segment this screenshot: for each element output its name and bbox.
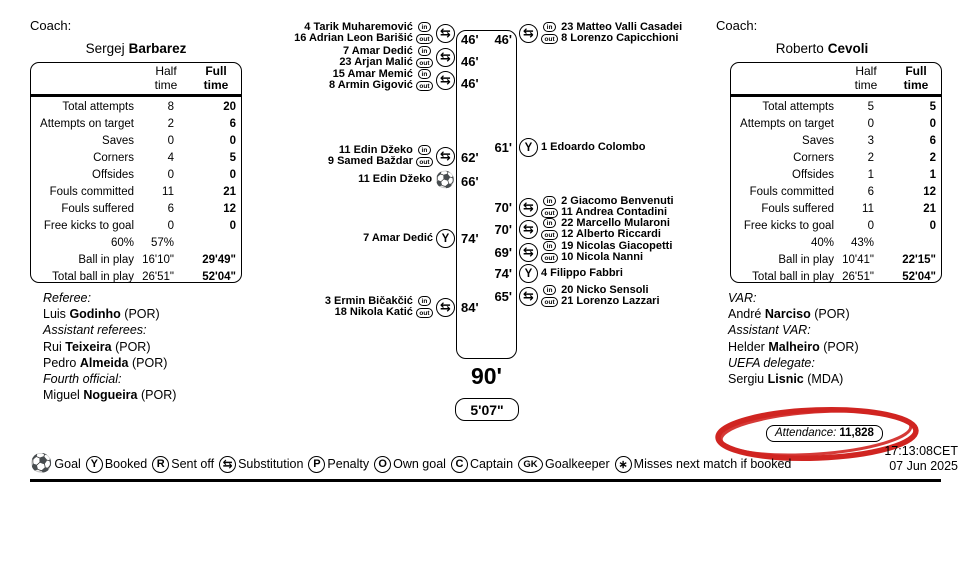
table-row: Fouls committed612 xyxy=(731,183,941,200)
own-goal-icon: O xyxy=(374,456,391,473)
player-names: 20 Nicko Sensoli 21 Lorenzo Lazzari xyxy=(561,285,659,308)
stat-full-value: 21 xyxy=(174,186,239,198)
substitution-event: ⇆ in out 22 Marcello Mularoni 12 Alberto… xyxy=(519,218,670,241)
table-row: Total ball in play26'51"52'04" xyxy=(31,268,241,285)
player-names: 22 Marcello Mularoni 12 Alberto Riccardi xyxy=(561,218,670,241)
event-minute: 46' xyxy=(461,54,479,69)
full-time-column-header: Full time xyxy=(893,65,939,92)
stat-full-value: 52'04" xyxy=(174,271,239,283)
home-coach-label: Coach: xyxy=(30,18,71,33)
stat-full-value: 5 xyxy=(874,101,939,113)
substitution-event: ⇆ in out 20 Nicko Sensoli 21 Lorenzo Laz… xyxy=(519,285,660,308)
in-out-badges: in out xyxy=(541,22,558,44)
stat-label: Total ball in play xyxy=(31,271,134,283)
legend-label: Goal xyxy=(54,457,80,471)
table-row: Offsides11 xyxy=(731,166,941,183)
symbols-legend: ⚽ Goal Y Booked R Sent off ⇆ Substitutio… xyxy=(30,454,791,474)
official-country: (MDA) xyxy=(804,372,844,386)
stat-half-value: 43% xyxy=(834,237,874,249)
report-timestamp: 17:13:08CET 07 Jun 2025 xyxy=(884,444,958,473)
stat-half-value: 4 xyxy=(134,152,174,164)
stat-half-value: 2 xyxy=(134,118,174,130)
in-out-badges: in out xyxy=(541,241,558,263)
stat-label: Free kicks to goal xyxy=(731,220,834,232)
out-badge: out xyxy=(541,208,558,218)
official-last-name: Almeida xyxy=(80,356,129,370)
away-coach-name: RobertoCevoli xyxy=(716,41,928,56)
home-stats-table: Half time Full time Total attempts820 At… xyxy=(30,62,242,283)
legend-label: Sent off xyxy=(171,457,214,471)
stat-full-value: 0 xyxy=(174,169,239,181)
stat-label: Attempts on target xyxy=(731,118,834,130)
player-names: 7 Amar Dedić 23 Arjan Malić xyxy=(339,46,413,69)
event-minute: 65' xyxy=(456,289,512,304)
player-out: 18 Nikola Katić xyxy=(325,307,413,318)
stat-label: Ball in play xyxy=(731,254,834,266)
booked-player: 1 Edoardo Colombo xyxy=(541,142,646,153)
official-last-name: Nogueira xyxy=(83,388,137,402)
booked-player: 7 Amar Dedić xyxy=(363,233,433,244)
substitution-icon: ⇆ xyxy=(219,456,236,473)
footer-divider xyxy=(30,479,941,482)
stat-label: Fouls committed xyxy=(31,186,134,198)
goal-icon: ⚽ xyxy=(30,455,52,473)
in-badge: in xyxy=(543,22,556,32)
substitution-icon: ⇆ xyxy=(436,298,455,317)
official-first-name: Sergiu xyxy=(728,372,764,386)
official-first-name: Miguel xyxy=(43,388,80,402)
official-last-name: Godinho xyxy=(69,307,120,321)
stat-half-value: 8 xyxy=(134,101,174,113)
official-last-name: Lisnic xyxy=(768,372,804,386)
table-row: Ball in play16'10"29'49" xyxy=(31,251,241,268)
goal-icon: ⚽ xyxy=(435,172,455,188)
player-names: 4 Tarik Muharemović 16 Adrian Leon Bariš… xyxy=(294,22,413,45)
stat-label: 40% xyxy=(731,237,834,249)
player-out: 8 Lorenzo Capicchioni xyxy=(561,33,682,44)
booked-icon: Y xyxy=(519,138,538,157)
out-badge: out xyxy=(416,81,433,91)
home-coach-last-name: Barbarez xyxy=(129,41,187,56)
substitution-event: ⇆ in out 23 Matteo Valli Casadei 8 Loren… xyxy=(519,22,682,45)
official-role: Assistant VAR: xyxy=(728,322,859,338)
booking-event: 7 Amar Dedić Y xyxy=(363,229,455,248)
out-badge: out xyxy=(541,34,558,44)
table-row: Fouls committed1121 xyxy=(31,183,241,200)
official-name: SergiuLisnic (MDA) xyxy=(728,371,859,387)
in-out-badges: in out xyxy=(416,46,433,68)
player-out: 16 Adrian Leon Barišić xyxy=(294,33,413,44)
booking-event: Y 1 Edoardo Colombo xyxy=(519,138,646,157)
stat-full-value: 2 xyxy=(874,152,939,164)
stat-full-value: 0 xyxy=(874,220,939,232)
stat-half-value: 0 xyxy=(134,220,174,232)
substitution-icon: ⇆ xyxy=(519,198,538,217)
legend-label: Penalty xyxy=(327,457,369,471)
player-names: 19 Nicolas Giacopetti 10 Nicola Nanni xyxy=(561,241,672,264)
official-country: (POR) xyxy=(112,340,151,354)
var-officials-block: VAR: AndréNarciso (POR) Assistant VAR: H… xyxy=(728,290,859,387)
substitution-event: ⇆ in out 2 Giacomo Benvenuti 11 Andrea C… xyxy=(519,196,674,219)
table-row: 40%43% xyxy=(731,234,941,251)
event-minute: 61' xyxy=(456,140,512,155)
legend-item: Y Booked xyxy=(86,456,147,473)
in-badge: in xyxy=(418,69,431,79)
in-out-badges: in out xyxy=(541,218,558,240)
away-stats-header: Half time Full time xyxy=(731,63,941,97)
stat-label: Free kicks to goal xyxy=(31,220,134,232)
away-coach-first-name: Roberto xyxy=(776,41,824,56)
stat-full-value: 20 xyxy=(174,101,239,113)
event-minute: 74' xyxy=(456,266,512,281)
official-country: (POR) xyxy=(129,356,168,370)
player-names: 23 Matteo Valli Casadei 8 Lorenzo Capicc… xyxy=(561,22,682,45)
away-coach-last-name: Cevoli xyxy=(828,41,869,56)
in-out-badges: in out xyxy=(416,22,433,44)
substitution-event: 11 Edin Džeko 9 Samed Baždar in out ⇆ xyxy=(328,145,455,168)
substitution-event: 4 Tarik Muharemović 16 Adrian Leon Bariš… xyxy=(294,22,455,45)
official-name: RuiTeixeira (POR) xyxy=(43,339,176,355)
stat-half-value: 16'10" xyxy=(134,254,174,266)
table-row: Attempts on target00 xyxy=(731,115,941,132)
stat-label: Offsides xyxy=(731,169,834,181)
event-minute: 66' xyxy=(461,174,479,189)
event-minute: 70' xyxy=(456,200,512,215)
legend-item: ⇆ Substitution xyxy=(219,456,303,473)
in-badge: in xyxy=(543,196,556,206)
official-role: Fourth official: xyxy=(43,371,176,387)
in-badge: in xyxy=(543,241,556,251)
stat-label: Total attempts xyxy=(31,101,134,113)
stat-label: Saves xyxy=(31,135,134,147)
stat-half-value: 2 xyxy=(834,152,874,164)
stat-half-value: 6 xyxy=(834,186,874,198)
away-coach-label: Coach: xyxy=(716,18,757,33)
table-row: Total ball in play26'51"52'04" xyxy=(731,268,941,285)
table-row: Total attempts820 xyxy=(31,98,241,115)
legend-label: Captain xyxy=(470,457,513,471)
stat-label: Total ball in play xyxy=(731,271,834,283)
out-badge: out xyxy=(416,34,433,44)
stat-full-value: 0 xyxy=(874,118,939,130)
substitution-event: 7 Amar Dedić 23 Arjan Malić in out ⇆ xyxy=(339,46,455,69)
in-out-badges: in out xyxy=(416,145,433,167)
home-stats-rows: Total attempts820 Attempts on target26 S… xyxy=(31,98,241,285)
official-country: (POR) xyxy=(138,388,177,402)
stat-label: Ball in play xyxy=(31,254,134,266)
official-role: Referee: xyxy=(43,290,176,306)
full-time-minute: 90' xyxy=(456,363,517,390)
home-stats-header: Half time Full time xyxy=(31,63,241,97)
out-badge: out xyxy=(541,253,558,263)
out-badge: out xyxy=(541,230,558,240)
legend-label: Substitution xyxy=(238,457,303,471)
stat-half-value: 26'51" xyxy=(134,271,174,283)
home-coach-name: SergejBarbarez xyxy=(30,41,242,56)
match-report-page: Coach: SergejBarbarez Half time Full tim… xyxy=(0,0,970,565)
official-name: LuisGodinho (POR) xyxy=(43,306,176,322)
in-out-badges: in out xyxy=(541,196,558,218)
table-row: Offsides00 xyxy=(31,166,241,183)
goal-event: 11 Edin Džeko ⚽ xyxy=(358,172,455,188)
legend-item: C Captain xyxy=(451,456,513,473)
event-minute: 69' xyxy=(456,245,512,260)
table-row: 60%57% xyxy=(31,234,241,251)
stat-label: Total attempts xyxy=(731,101,834,113)
legend-item: GK Goalkeeper xyxy=(518,456,610,473)
in-out-badges: in out xyxy=(416,69,433,91)
stat-label: Saves xyxy=(731,135,834,147)
half-time-column-header: Half time xyxy=(145,65,187,92)
in-out-badges: in out xyxy=(416,296,433,318)
stat-label: 60% xyxy=(31,237,134,249)
stat-half-value: 0 xyxy=(834,118,874,130)
stat-half-value: 6 xyxy=(134,203,174,215)
in-badge: in xyxy=(543,218,556,228)
legend-label: Goalkeeper xyxy=(545,457,610,471)
official-last-name: Teixeira xyxy=(65,340,111,354)
substitution-icon: ⇆ xyxy=(436,24,455,43)
stat-full-value: 29'49" xyxy=(174,254,239,266)
in-badge: in xyxy=(418,296,431,306)
event-minute: 70' xyxy=(456,222,512,237)
table-row: Saves36 xyxy=(731,132,941,149)
official-role: Assistant referees: xyxy=(43,322,176,338)
official-name: PedroAlmeida (POR) xyxy=(43,355,176,371)
legend-item: P Penalty xyxy=(308,456,369,473)
stat-full-value: 52'04" xyxy=(874,271,939,283)
half-time-column-header: Half time xyxy=(845,65,887,92)
substitution-icon: ⇆ xyxy=(436,48,455,67)
in-badge: in xyxy=(418,22,431,32)
event-minute: 46' xyxy=(456,32,512,47)
stat-half-value: 3 xyxy=(834,135,874,147)
penalty-icon: P xyxy=(308,456,325,473)
player-out: 10 Nicola Nanni xyxy=(561,252,672,263)
legend-item: ∗ Misses next match if booked xyxy=(615,456,792,473)
stat-full-value: 12 xyxy=(174,203,239,215)
stat-full-value: 0 xyxy=(174,135,239,147)
player-names: 15 Amar Memić 8 Armin Gigović xyxy=(329,69,413,92)
stat-full-value: 12 xyxy=(874,186,939,198)
player-out: 9 Samed Baždar xyxy=(328,156,413,167)
stat-full-value: 21 xyxy=(874,203,939,215)
out-badge: out xyxy=(416,308,433,318)
booked-icon: Y xyxy=(436,229,455,248)
stat-label: Fouls suffered xyxy=(31,203,134,215)
stat-half-value: 11 xyxy=(834,203,874,215)
official-first-name: Luis xyxy=(43,307,66,321)
stat-half-value: 1 xyxy=(834,169,874,181)
official-first-name: Helder xyxy=(728,340,765,354)
stat-half-value: 26'51" xyxy=(834,271,874,283)
home-coach-first-name: Sergej xyxy=(86,41,125,56)
official-role: VAR: xyxy=(728,290,859,306)
official-first-name: André xyxy=(728,307,761,321)
out-badge: out xyxy=(416,157,433,167)
goalkeeper-icon: GK xyxy=(518,456,543,473)
official-first-name: Rui xyxy=(43,340,62,354)
in-badge: in xyxy=(418,46,431,56)
official-role: UEFA delegate: xyxy=(728,355,859,371)
substitution-icon: ⇆ xyxy=(436,147,455,166)
table-row: Total attempts55 xyxy=(731,98,941,115)
stat-full-value: 1 xyxy=(874,169,939,181)
out-badge: out xyxy=(541,297,558,307)
misses-next-icon: ∗ xyxy=(615,456,632,473)
stat-full-value: 0 xyxy=(174,220,239,232)
player-names: 3 Ermin Bičakčić 18 Nikola Katić xyxy=(325,296,413,319)
stat-half-value: 0 xyxy=(134,135,174,147)
substitution-event: ⇆ in out 19 Nicolas Giacopetti 10 Nicola… xyxy=(519,241,672,264)
player-out: 21 Lorenzo Lazzari xyxy=(561,296,659,307)
substitution-event: 3 Ermin Bičakčić 18 Nikola Katić in out … xyxy=(325,296,455,319)
away-stats-rows: Total attempts55 Attempts on target00 Sa… xyxy=(731,98,941,285)
official-first-name: Pedro xyxy=(43,356,76,370)
substitution-icon: ⇆ xyxy=(519,287,538,306)
table-row: Ball in play10'41"22'15" xyxy=(731,251,941,268)
official-country: (POR) xyxy=(820,340,859,354)
event-minute: 46' xyxy=(461,76,479,91)
substitution-icon: ⇆ xyxy=(436,71,455,90)
booked-icon: Y xyxy=(86,456,103,473)
stat-full-value: 6 xyxy=(174,118,239,130)
table-row: Attempts on target26 xyxy=(31,115,241,132)
table-row: Corners45 xyxy=(31,149,241,166)
out-badge: out xyxy=(416,58,433,68)
stat-half-value: 57% xyxy=(134,237,174,249)
player-names: 11 Edin Džeko 9 Samed Baždar xyxy=(328,145,413,168)
player-out: 8 Armin Gigović xyxy=(329,80,413,91)
table-row: Free kicks to goal00 xyxy=(31,217,241,234)
player-names: 2 Giacomo Benvenuti 11 Andrea Contadini xyxy=(561,196,673,219)
in-badge: in xyxy=(418,145,431,155)
stat-label: Attempts on target xyxy=(31,118,134,130)
booked-icon: Y xyxy=(519,264,538,283)
stat-half-value: 0 xyxy=(834,220,874,232)
substitution-icon: ⇆ xyxy=(519,243,538,262)
stat-half-value: 0 xyxy=(134,169,174,181)
official-name: HelderMalheiro (POR) xyxy=(728,339,859,355)
full-time-column-header: Full time xyxy=(193,65,239,92)
goal-scorer: 11 Edin Džeko xyxy=(358,174,432,185)
legend-label: Booked xyxy=(105,457,147,471)
table-row: Saves00 xyxy=(31,132,241,149)
stat-half-value: 5 xyxy=(834,101,874,113)
away-stats-table: Half time Full time Total attempts55 Att… xyxy=(730,62,942,283)
stat-full-value: 5 xyxy=(174,152,239,164)
substitution-icon: ⇆ xyxy=(519,220,538,239)
stat-label: Corners xyxy=(731,152,834,164)
official-name: AndréNarciso (POR) xyxy=(728,306,859,322)
legend-label: Own goal xyxy=(393,457,446,471)
booking-event: Y 4 Filippo Fabbri xyxy=(519,264,623,283)
official-country: (POR) xyxy=(121,307,160,321)
legend-item: R Sent off xyxy=(152,456,214,473)
in-badge: in xyxy=(543,285,556,295)
captain-icon: C xyxy=(451,456,468,473)
added-time-badge: 5'07" xyxy=(455,398,519,421)
official-last-name: Narciso xyxy=(765,307,811,321)
stat-full-value: 6 xyxy=(874,135,939,147)
legend-label: Misses next match if booked xyxy=(634,457,792,471)
stat-half-value: 10'41" xyxy=(834,254,874,266)
stat-label: Offsides xyxy=(31,169,134,181)
table-row: Free kicks to goal00 xyxy=(731,217,941,234)
substitution-event: 15 Amar Memić 8 Armin Gigović in out ⇆ xyxy=(329,69,455,92)
stat-full-value: 22'15" xyxy=(874,254,939,266)
stat-label: Corners xyxy=(31,152,134,164)
table-row: Fouls suffered612 xyxy=(31,200,241,217)
table-row: Corners22 xyxy=(731,149,941,166)
official-country: (POR) xyxy=(811,307,850,321)
stat-half-value: 11 xyxy=(134,186,174,198)
report-date: 07 Jun 2025 xyxy=(884,459,958,474)
stat-label: Fouls committed xyxy=(731,186,834,198)
official-name: MiguelNogueira (POR) xyxy=(43,387,176,403)
sent-off-icon: R xyxy=(152,456,169,473)
booked-player: 4 Filippo Fabbri xyxy=(541,268,623,279)
report-time: 17:13:08CET xyxy=(884,444,958,459)
official-last-name: Malheiro xyxy=(768,340,819,354)
legend-item: ⚽ Goal xyxy=(30,455,81,473)
stat-label: Fouls suffered xyxy=(731,203,834,215)
in-out-badges: in out xyxy=(541,285,558,307)
table-row: Fouls suffered1121 xyxy=(731,200,941,217)
substitution-icon: ⇆ xyxy=(519,24,538,43)
match-officials-block: Referee: LuisGodinho (POR) Assistant ref… xyxy=(43,290,176,403)
legend-item: O Own goal xyxy=(374,456,446,473)
